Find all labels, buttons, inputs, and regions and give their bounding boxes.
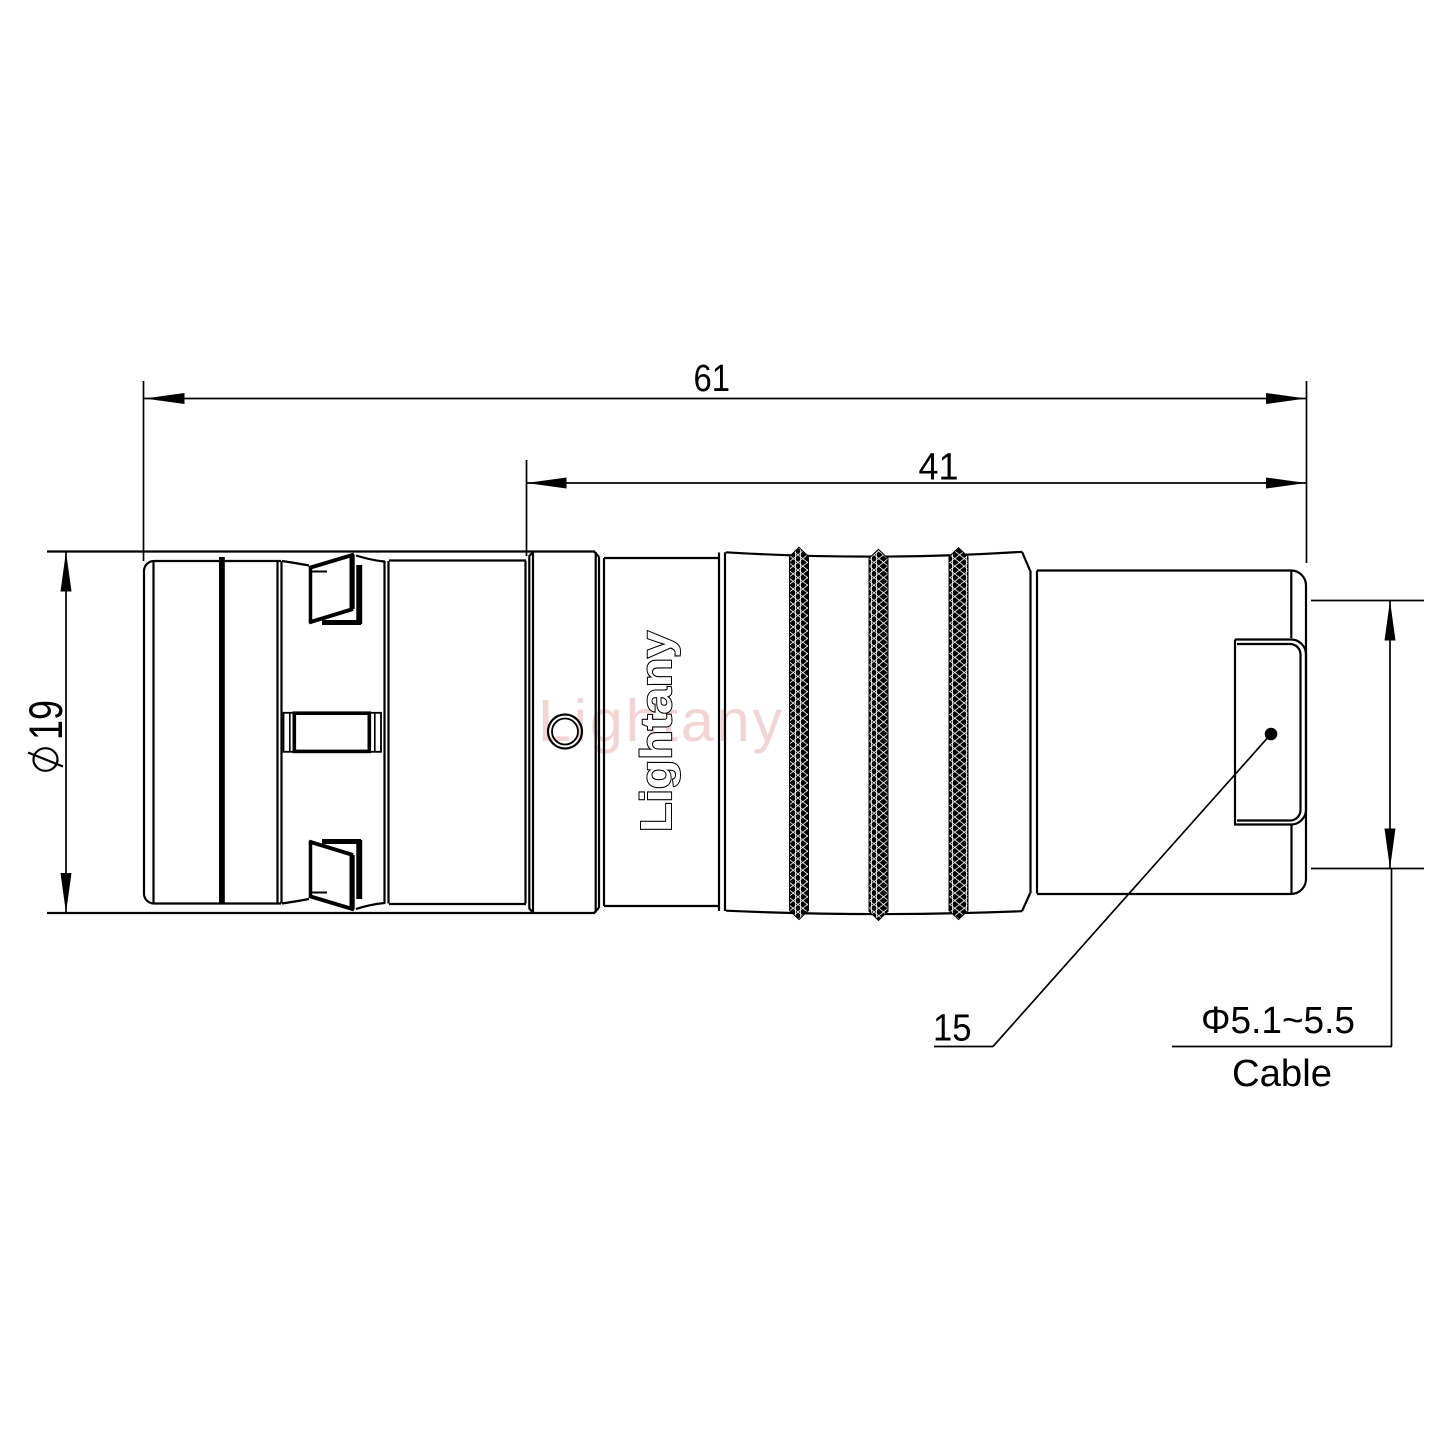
svg-text:15: 15 xyxy=(933,1008,972,1050)
svg-text:41: 41 xyxy=(919,447,959,489)
svg-text:61: 61 xyxy=(694,358,731,400)
svg-text:Lightany: Lightany xyxy=(632,630,681,832)
svg-text:Cable: Cable xyxy=(1232,1053,1332,1095)
svg-text:Φ5.1~5.5: Φ5.1~5.5 xyxy=(1201,1000,1355,1042)
svg-text:19: 19 xyxy=(19,700,72,740)
